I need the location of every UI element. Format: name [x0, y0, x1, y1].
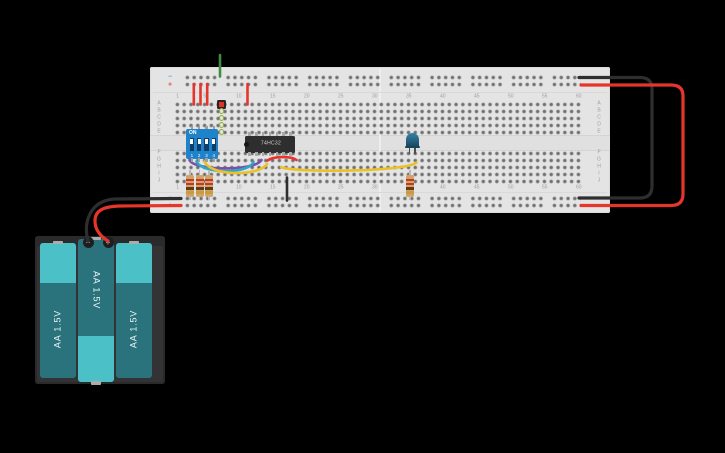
resistor-1[interactable] — [186, 170, 195, 200]
pushbutton[interactable] — [217, 100, 226, 109]
dip-handle — [212, 139, 215, 145]
resistor-2[interactable] — [195, 170, 204, 200]
ic-pin — [276, 152, 279, 155]
resistor-band — [186, 191, 194, 194]
resistor-body — [186, 175, 194, 197]
connection-ring — [219, 122, 225, 128]
resistor-lead — [189, 196, 191, 200]
pushbutton-cap — [219, 102, 224, 107]
dip-number: 1 — [191, 153, 194, 158]
resistor-body — [196, 175, 204, 197]
dip-pin — [213, 126, 215, 129]
resistor-band — [205, 179, 213, 182]
ic-notch — [244, 142, 249, 147]
ic-pin — [248, 132, 251, 135]
resistor-band — [186, 179, 194, 182]
dip-pin — [198, 126, 200, 129]
dip-handle — [190, 139, 193, 145]
dip-handle — [205, 139, 208, 145]
ic-pin — [255, 152, 258, 155]
resistor-band — [196, 183, 204, 186]
dip-lever-2[interactable] — [197, 138, 202, 151]
dip-pin — [191, 158, 193, 161]
connection-ring — [219, 108, 225, 114]
ic-74hc32[interactable]: 74HC32 — [245, 136, 295, 153]
resistor-lead — [208, 196, 210, 200]
ic-pin — [269, 132, 272, 135]
resistor-band — [205, 183, 213, 186]
dip-pin — [198, 158, 200, 161]
resistor-lead — [409, 196, 411, 200]
wire-red-jumper[interactable] — [268, 157, 297, 160]
wire-layer — [0, 0, 725, 453]
connection-ring — [219, 115, 225, 121]
ic-pin — [269, 152, 272, 155]
resistor-body — [205, 175, 213, 197]
resistor-body — [406, 175, 414, 197]
resistor-band — [406, 183, 414, 186]
circuit-canvas[interactable]: − + − + 11551010151520202525303035354040… — [0, 0, 725, 453]
dip-lever-4[interactable] — [212, 138, 217, 151]
resistor-band — [406, 187, 414, 190]
resistor-band — [205, 191, 213, 194]
resistor-band — [196, 187, 204, 190]
dip-handle — [198, 139, 201, 145]
resistor-band — [406, 179, 414, 182]
resistor-3[interactable] — [205, 170, 214, 200]
dip-switch[interactable]: ON 1 2 3 4 — [186, 129, 218, 159]
dip-lever-3[interactable] — [204, 138, 209, 151]
resistor-4[interactable] — [406, 170, 415, 200]
wire-red-rail-link[interactable] — [581, 85, 683, 206]
dip-number: 3 — [205, 153, 208, 158]
ic-pin — [282, 132, 285, 135]
connection-ring — [219, 129, 225, 135]
dip-pin — [205, 126, 207, 129]
ic-pin — [282, 152, 285, 155]
blue-led[interactable] — [404, 133, 421, 155]
resistor-band — [205, 187, 213, 190]
ic-pin — [289, 132, 292, 135]
ic-label: 74HC32 — [261, 142, 281, 147]
ic-pin — [262, 152, 265, 155]
resistor-band — [196, 191, 204, 194]
wire-red-battery-positive[interactable] — [95, 206, 181, 242]
resistor-lead — [199, 196, 201, 200]
resistor-band — [406, 191, 414, 194]
resistor-band — [186, 183, 194, 186]
dip-lever-1[interactable] — [190, 138, 195, 151]
resistor-band — [196, 179, 204, 182]
resistor-band — [186, 187, 194, 190]
dip-number: 2 — [198, 153, 201, 158]
dip-number: 4 — [213, 153, 216, 158]
ic-pin — [276, 132, 279, 135]
dip-on-label: ON — [189, 131, 197, 136]
wire-black-rail-link[interactable] — [579, 78, 652, 199]
ic-pin — [262, 132, 265, 135]
ic-pin — [289, 152, 292, 155]
dip-pin — [213, 158, 215, 161]
ic-pin — [255, 132, 258, 135]
ic-pin — [248, 152, 251, 155]
dip-pin — [191, 126, 193, 129]
dip-pin — [205, 158, 207, 161]
led-bulb — [406, 133, 419, 149]
wire-yellow-led[interactable] — [281, 163, 417, 171]
